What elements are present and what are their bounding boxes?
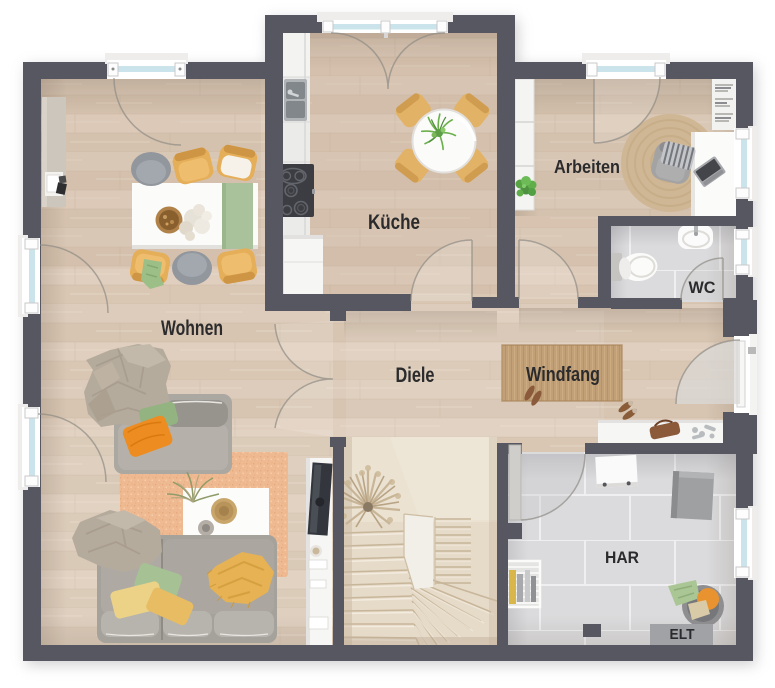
svg-text:Arbeiten: Arbeiten	[554, 157, 620, 177]
svg-text:Wohnen: Wohnen	[161, 317, 223, 340]
svg-text:HAR: HAR	[605, 549, 639, 567]
svg-text:Diele: Diele	[396, 364, 435, 387]
svg-text:ELT: ELT	[670, 626, 695, 643]
svg-text:Windfang: Windfang	[526, 364, 600, 386]
svg-text:WC: WC	[689, 278, 716, 297]
svg-text:Küche: Küche	[368, 211, 420, 234]
